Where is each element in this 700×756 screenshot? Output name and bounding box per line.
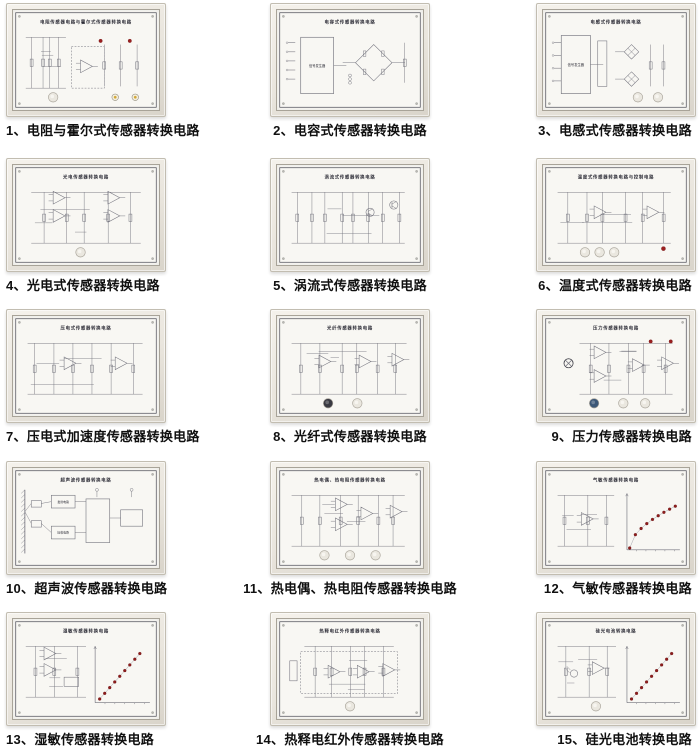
- board-title: 压力传感器转换电路: [593, 325, 639, 332]
- opamp-symbol: [328, 665, 340, 678]
- catalog-cell: 热释电红外传感器转换电路14、热释电红外传感器转换电路: [233, 612, 466, 756]
- board-title: 电阻传感器电路与霍尔式传感器转换电路: [40, 19, 132, 26]
- panel-caption: 13、湿敏传感器转换电路: [6, 733, 154, 747]
- led-data-dot: [634, 533, 637, 536]
- screw: [682, 258, 684, 260]
- panel-caption: 5、涡流式传感器转换电路: [273, 279, 427, 293]
- panel-caption: 15、硅光电池转换电路: [557, 733, 696, 747]
- board-schematic: 硅光电池转换电路: [543, 619, 689, 719]
- led-indicator: [99, 39, 102, 42]
- panel-caption: 9、压力传感器转换电路: [551, 430, 696, 444]
- led-data-dot: [133, 658, 136, 661]
- knob-highlight: [50, 95, 54, 99]
- screw: [282, 258, 284, 260]
- board-plate: 压力传感器转换电路: [542, 315, 690, 417]
- circuit-board-panel-13: 湿敏传感器转换电路: [6, 612, 166, 726]
- screw: [152, 15, 154, 17]
- circuit-board-panel-11: 热电偶、热电阻传感器转换电路: [270, 461, 430, 575]
- knob-highlight: [621, 401, 625, 405]
- led-data-dot: [118, 675, 121, 678]
- knob-highlight: [655, 95, 659, 99]
- screw: [282, 473, 284, 475]
- board-title: 光纤传感器转换电路: [326, 325, 373, 332]
- screw: [416, 258, 418, 260]
- screw: [416, 15, 418, 17]
- circuit-board-panel-6: 温度式传感器转换电路与控制电路: [536, 158, 696, 272]
- screw: [548, 711, 550, 713]
- screw: [18, 473, 20, 475]
- opamp-symbol: [662, 357, 674, 370]
- board-plate: 热电偶、热电阻传感器转换电路: [276, 467, 424, 569]
- knob-highlight: [635, 95, 639, 99]
- printed-border: [546, 470, 687, 565]
- screw: [416, 624, 418, 626]
- block-label: 接收电路: [57, 529, 69, 534]
- bridge-diamond: [355, 45, 392, 81]
- screw: [152, 258, 154, 260]
- led-data-dot: [123, 669, 126, 672]
- board-schematic: 热释电红外传感器转换电路: [277, 619, 423, 719]
- catalog-row: 光电传感器转换电路4、光电式传感器转换电路涡流式传感器转换电路5、涡流式传感器转…: [0, 151, 700, 302]
- opamp-symbol: [647, 206, 659, 219]
- screw: [18, 15, 20, 17]
- panel-caption: 12、气敏传感器转换电路: [544, 582, 696, 596]
- board-schematic: 涡流式传感器转换电路: [277, 165, 423, 265]
- catalog-cell: 压力传感器转换电路9、压力传感器转换电路: [467, 309, 700, 453]
- board-title: 硅光电池转换电路: [596, 627, 637, 634]
- board-title: 电容式传感器转换电路: [324, 19, 375, 26]
- circuit-board-panel-9: 压力传感器转换电路: [536, 309, 696, 423]
- opamp-symbol: [319, 355, 331, 368]
- catalog-cell: 温度式传感器转换电路与控制电路6、温度式传感器转换电路: [467, 158, 700, 302]
- catalog-cell: 电容式传感器转换电路信号发生器2、电容式传感器转换电路: [233, 3, 466, 151]
- screw: [282, 560, 284, 562]
- screw: [18, 560, 20, 562]
- board-schematic: 压力传感器转换电路: [543, 316, 689, 416]
- screw: [416, 473, 418, 475]
- screw: [682, 409, 684, 411]
- knob-highlight: [611, 250, 615, 254]
- screw: [18, 624, 20, 626]
- panel-caption: 10、超声波传感器转换电路: [6, 582, 167, 596]
- screw: [682, 624, 684, 626]
- plot-curve: [630, 506, 676, 548]
- knob-highlight: [322, 552, 326, 556]
- led-data-dot: [651, 518, 654, 521]
- catalog-grid: 电阻传感器电路与霍尔式传感器转换电路1、电阻与霍尔式传感器转换电路电容式传感器转…: [0, 0, 700, 756]
- catalog-cell: 热电偶、热电阻传感器转换电路11、热电偶、热电阻传感器转换电路: [233, 461, 466, 605]
- printed-border: [16, 319, 157, 414]
- board-plate: 压电式传感器转换电路: [12, 315, 160, 417]
- led-data-dot: [138, 652, 141, 655]
- led-data-dot: [635, 692, 638, 695]
- led-indicator: [649, 340, 652, 343]
- screw: [152, 624, 154, 626]
- screw: [548, 473, 550, 475]
- test-terminal: [95, 488, 98, 491]
- catalog-cell: 湿敏传感器转换电路13、湿敏传感器转换电路: [0, 612, 233, 756]
- screw: [18, 409, 20, 411]
- led-data-dot: [650, 675, 653, 678]
- opamp-symbol: [361, 507, 373, 520]
- screw: [548, 560, 550, 562]
- screw: [416, 560, 418, 562]
- screw: [682, 560, 684, 562]
- led-data-dot: [674, 504, 677, 507]
- catalog-cell: 压电式传感器转换电路7、压电式加速度传感器转换电路: [0, 309, 233, 453]
- board-plate: 湿敏传感器转换电路: [12, 618, 160, 720]
- printed-border: [16, 168, 157, 263]
- board-schematic: 温度式传感器转换电路与控制电路: [543, 165, 689, 265]
- board-title: 光电传感器转换电路: [62, 174, 109, 181]
- test-terminal: [130, 488, 133, 491]
- panel-caption: 4、光电式传感器转换电路: [6, 279, 160, 293]
- catalog-cell: 气敏传感器转换电路12、气敏传感器转换电路: [467, 461, 700, 605]
- opamp-symbol: [390, 505, 402, 518]
- board-schematic: 电容式传感器转换电路信号发生器: [277, 10, 423, 110]
- printed-border: [546, 621, 687, 716]
- screw: [18, 322, 20, 324]
- led-data-dot: [640, 686, 643, 689]
- circuit-board-panel-5: 涡流式传感器转换电路: [270, 158, 430, 272]
- knob-highlight: [347, 703, 351, 707]
- screw: [682, 711, 684, 713]
- led-data-dot: [657, 514, 660, 517]
- board-plate: 电感式传感器转换电路信号发生器: [542, 9, 690, 111]
- catalog-cell: 硅光电池转换电路15、硅光电池转换电路: [467, 612, 700, 756]
- screw: [682, 322, 684, 324]
- panel-caption: 11、热电偶、热电阻传感器转换电路: [243, 582, 457, 596]
- screw: [682, 170, 684, 172]
- screw: [282, 624, 284, 626]
- board-title: 热电偶、热电阻传感器转换电路: [314, 476, 385, 483]
- screw: [152, 103, 154, 105]
- catalog-cell: 光电传感器转换电路4、光电式传感器转换电路: [0, 158, 233, 302]
- opamp-symbol: [359, 355, 371, 368]
- opamp-symbol: [335, 498, 347, 511]
- board-plate: 温度式传感器转换电路与控制电路: [542, 164, 690, 266]
- screw: [152, 170, 154, 172]
- board-plate: 热释电红外传感器转换电路: [276, 618, 424, 720]
- opamp-symbol: [108, 192, 120, 205]
- screw: [282, 103, 284, 105]
- printed-border: [16, 13, 157, 108]
- board-plate: 涡流式传感器转换电路: [276, 164, 424, 266]
- catalog-row: 压电式传感器转换电路7、压电式加速度传感器转换电路光纤传感器转换电路8、光纤式传…: [0, 302, 700, 453]
- screw: [282, 322, 284, 324]
- screw: [548, 170, 550, 172]
- knob-highlight: [582, 250, 586, 254]
- knob-highlight: [597, 250, 601, 254]
- printed-border: [546, 13, 687, 108]
- catalog-row: 电阻传感器电路与霍尔式传感器转换电路1、电阻与霍尔式传感器转换电路电容式传感器转…: [0, 0, 700, 151]
- led-data-dot: [660, 663, 663, 666]
- catalog-cell: 涡流式传感器转换电路5、涡流式传感器转换电路: [233, 158, 466, 302]
- catalog-cell: 电感式传感器转换电路信号发生器3、电感式传感器转换电路: [467, 3, 700, 151]
- opamp-symbol: [81, 60, 93, 73]
- catalog-cell: 超声波传感器转换电路发射电路接收电路10、超声波传感器转换电路: [0, 461, 233, 605]
- board-title: 电感式传感器转换电路: [590, 19, 641, 26]
- screw: [416, 409, 418, 411]
- block-label: 信号发生器: [568, 62, 585, 67]
- led-data-dot: [103, 692, 106, 695]
- screw: [152, 409, 154, 411]
- screw: [152, 711, 154, 713]
- screw: [548, 15, 550, 17]
- screw: [282, 409, 284, 411]
- screw: [152, 322, 154, 324]
- board-schematic: 压电式传感器转换电路: [13, 316, 159, 416]
- transducer: [31, 500, 41, 506]
- terminal-center: [114, 96, 117, 99]
- board-schematic: 气敏传感器转换电路: [543, 468, 689, 568]
- knob-highlight: [373, 552, 377, 556]
- panel-caption: 3、电感式传感器转换电路: [538, 124, 696, 138]
- module-box: [64, 677, 79, 686]
- board-title: 气敏传感器转换电路: [592, 476, 639, 483]
- circuit-board-panel-8: 光纤传感器转换电路: [270, 309, 430, 423]
- opamp-symbol: [594, 206, 606, 219]
- screw: [18, 103, 20, 105]
- circuit-board-panel-4: 光电传感器转换电路: [6, 158, 166, 272]
- board-title: 温度式传感器转换电路与控制电路: [578, 174, 654, 181]
- panel-caption: 1、电阻与霍尔式传感器转换电路: [6, 124, 200, 138]
- coil-symbol: [349, 78, 352, 81]
- board-title: 湿敏传感器转换电路: [63, 627, 109, 634]
- block-label: 信号发生器: [309, 63, 326, 68]
- board-schematic: 电阻传感器电路与霍尔式传感器转换电路: [13, 10, 159, 110]
- screw: [282, 170, 284, 172]
- led-data-dot: [662, 510, 665, 513]
- board-plate: 超声波传感器转换电路发射电路接收电路: [12, 467, 160, 569]
- led-data-dot: [665, 658, 668, 661]
- knob-highlight: [591, 401, 595, 405]
- panel-caption: 14、热释电红外传感器转换电路: [256, 733, 444, 747]
- opamp-symbol: [383, 663, 395, 676]
- board-schematic: 热电偶、热电阻传感器转换电路: [277, 468, 423, 568]
- circuit-board-panel-14: 热释电红外传感器转换电路: [270, 612, 430, 726]
- screw: [152, 473, 154, 475]
- board-plate: 气敏传感器转换电路: [542, 467, 690, 569]
- opamp-symbol: [53, 210, 65, 223]
- screw: [682, 473, 684, 475]
- knob-highlight: [355, 401, 359, 405]
- panel-caption: 7、压电式加速度传感器转换电路: [6, 430, 200, 444]
- led-data-dot: [670, 652, 673, 655]
- opamp-symbol: [53, 192, 65, 205]
- screw: [682, 103, 684, 105]
- panel-caption: 2、电容式传感器转换电路: [273, 124, 427, 138]
- board-schematic: 湿敏传感器转换电路: [13, 619, 159, 719]
- knob-highlight: [78, 250, 82, 254]
- board-schematic: 电感式传感器转换电路信号发生器: [543, 10, 689, 110]
- knob-highlight: [642, 401, 646, 405]
- panel-caption: 8、光纤式传感器转换电路: [273, 430, 427, 444]
- led-data-dot: [108, 686, 111, 689]
- catalog-row: 湿敏传感器转换电路13、湿敏传感器转换电路热释电红外传感器转换电路14、热释电红…: [0, 605, 700, 756]
- led-indicator: [661, 247, 665, 251]
- sensor-block: [290, 661, 297, 681]
- circuit-board-panel-1: 电阻传感器电路与霍尔式传感器转换电路: [6, 3, 166, 117]
- screw: [416, 170, 418, 172]
- knob-highlight: [325, 401, 329, 405]
- screw: [548, 409, 550, 411]
- photocell-symbol: [570, 670, 577, 677]
- circuit-board-panel-10: 超声波传感器转换电路发射电路接收电路: [6, 461, 166, 575]
- board-plate: 光纤传感器转换电路: [276, 315, 424, 417]
- printed-border: [546, 319, 687, 414]
- circuit-board-panel-3: 电感式传感器转换电路信号发生器: [536, 3, 696, 117]
- circuit-board-panel-15: 硅光电池转换电路: [536, 612, 696, 726]
- led-indicator: [669, 340, 672, 343]
- transistor-symbol: [390, 201, 398, 209]
- led-data-dot: [128, 663, 131, 666]
- circuit-board-panel-12: 气敏传感器转换电路: [536, 461, 696, 575]
- coil-symbol: [349, 74, 352, 77]
- board-plate: 电容式传感器转换电路信号发生器: [276, 9, 424, 111]
- screw: [18, 170, 20, 172]
- screw: [152, 560, 154, 562]
- board-title: 涡流式传感器转换电路: [324, 174, 375, 181]
- board-plate: 硅光电池转换电路: [542, 618, 690, 720]
- led-data-dot: [113, 680, 116, 683]
- circuit-board-panel-2: 电容式传感器转换电路信号发生器: [270, 3, 430, 117]
- screw: [282, 15, 284, 17]
- screw: [18, 711, 20, 713]
- catalog-cell: 光纤传感器转换电路8、光纤式传感器转换电路: [233, 309, 466, 453]
- screw: [416, 322, 418, 324]
- screw: [548, 322, 550, 324]
- led-data-dot: [640, 527, 643, 530]
- circuit-board-panel-7: 压电式传感器转换电路: [6, 309, 166, 423]
- catalog-cell: 电阻传感器电路与霍尔式传感器转换电路1、电阻与霍尔式传感器转换电路: [0, 3, 233, 151]
- screw: [282, 711, 284, 713]
- terminal-center: [134, 96, 137, 99]
- sensor-block: [598, 41, 607, 86]
- led-data-dot: [668, 507, 671, 510]
- panel-caption: 6、温度式传感器转换电路: [538, 279, 696, 293]
- led-indicator: [128, 39, 131, 42]
- board-plate: 电阻传感器电路与霍尔式传感器转换电路: [12, 9, 160, 111]
- board-title: 超声波传感器转换电路: [60, 476, 112, 483]
- led-data-dot: [628, 546, 631, 549]
- knob-highlight: [347, 552, 351, 556]
- board-schematic: 超声波传感器转换电路发射电路接收电路: [13, 468, 159, 568]
- dashed-module-outline: [71, 46, 104, 88]
- block-diagram-box: [86, 498, 110, 542]
- screw: [682, 15, 684, 17]
- block-diagram-box: [121, 509, 143, 525]
- block-label: 发射电路: [57, 498, 69, 503]
- screw: [416, 711, 418, 713]
- screw: [416, 103, 418, 105]
- board-schematic: 光纤传感器转换电路: [277, 316, 423, 416]
- screw: [18, 258, 20, 260]
- knob-highlight: [593, 703, 597, 707]
- screw: [548, 258, 550, 260]
- screw: [548, 103, 550, 105]
- board-title: 热释电红外传感器转换电路: [319, 627, 380, 634]
- opamp-symbol: [592, 661, 604, 674]
- coil-symbol: [349, 81, 352, 84]
- opamp-symbol: [392, 354, 404, 367]
- led-data-dot: [98, 697, 101, 700]
- transducer: [31, 520, 41, 526]
- led-data-dot: [645, 522, 648, 525]
- board-schematic: 光电传感器转换电路: [13, 165, 159, 265]
- opamp-symbol: [594, 346, 606, 359]
- board-plate: 光电传感器转换电路: [12, 164, 160, 266]
- opamp-symbol: [115, 357, 127, 370]
- opamp-symbol: [594, 370, 606, 383]
- led-data-dot: [630, 697, 633, 700]
- board-title: 压电式传感器转换电路: [61, 325, 112, 332]
- led-data-dot: [655, 669, 658, 672]
- catalog-row: 超声波传感器转换电路发射电路接收电路10、超声波传感器转换电路热电偶、热电阻传感…: [0, 454, 700, 605]
- screw: [548, 624, 550, 626]
- led-data-dot: [645, 680, 648, 683]
